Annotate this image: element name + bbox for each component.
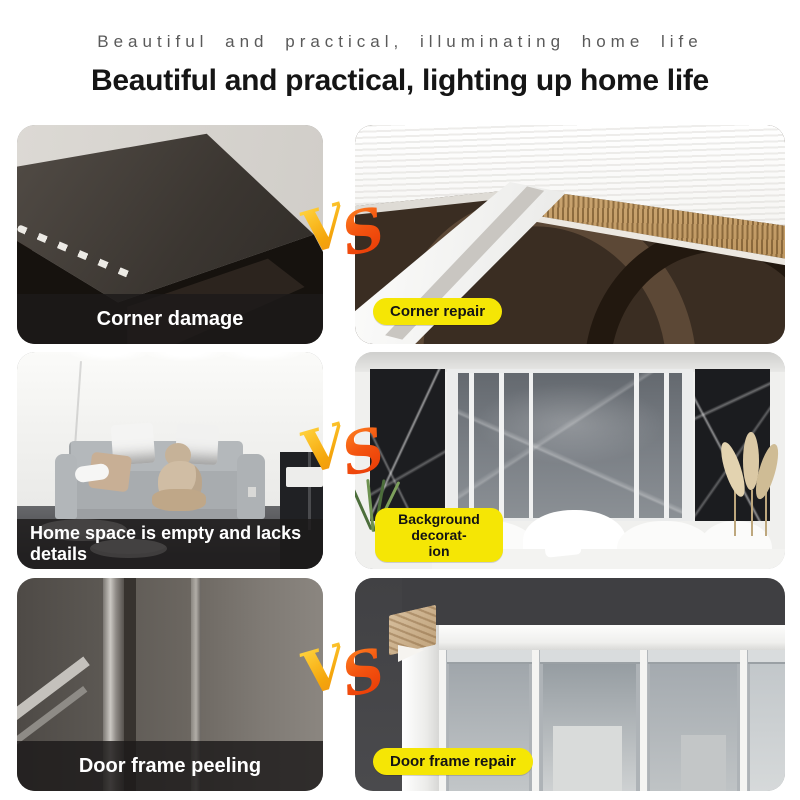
door-divider	[532, 650, 539, 791]
caption-corner-damage: Corner damage	[17, 294, 323, 344]
photo-background-decoration: Background decorat-ion	[355, 352, 785, 569]
photo-empty-home: Home space is empty and lacks details	[17, 352, 323, 569]
tag-text: Corner repair	[390, 298, 485, 325]
white-door-beam	[402, 625, 785, 651]
pampas-grass-plant	[721, 432, 781, 536]
trim-strips	[469, 373, 534, 518]
photo-door-frame-repair: Door frame repair	[355, 578, 785, 791]
door-divider	[640, 650, 647, 791]
promo-banner: Beautiful and practical, illuminating ho…	[0, 0, 800, 800]
wall-socket	[248, 487, 256, 497]
trim-strips	[609, 373, 674, 518]
dining-table	[286, 467, 323, 487]
inner-room	[681, 735, 726, 791]
photo-corner-damage: Corner damage	[17, 125, 323, 344]
ceiling-lights	[17, 352, 323, 382]
photo-door-frame-peeling: Door frame peeling	[17, 578, 323, 791]
tag-background-decoration: Background decorat-ion	[375, 508, 503, 562]
inner-room	[553, 726, 622, 791]
photo-corner-repair: Corner repair	[355, 125, 785, 344]
door-track	[439, 650, 785, 664]
tag-text: ion	[381, 543, 497, 559]
tag-text: Background decorat-	[381, 511, 497, 543]
peeling-patches	[136, 587, 185, 753]
tag-corner-repair: Corner repair	[373, 298, 502, 325]
header-subtitle: Beautiful and practical, illuminating ho…	[0, 32, 800, 52]
glass-panel	[750, 664, 785, 791]
tag-text: Door frame repair	[390, 748, 516, 775]
sofa-pillow	[543, 520, 582, 558]
tag-door-frame-repair: Door frame repair	[373, 748, 533, 775]
plant-stem	[734, 490, 736, 537]
caption-door-frame-peeling: Door frame peeling	[17, 741, 323, 791]
page-title: Beautiful and practical, lighting up hom…	[0, 64, 800, 98]
plant-stem	[751, 490, 753, 537]
sofa-armrest	[55, 454, 76, 519]
tan-cushion	[152, 489, 206, 511]
door-divider	[740, 650, 747, 791]
caption-empty-home: Home space is empty and lacks details	[17, 519, 323, 569]
plant-stem	[765, 490, 767, 537]
